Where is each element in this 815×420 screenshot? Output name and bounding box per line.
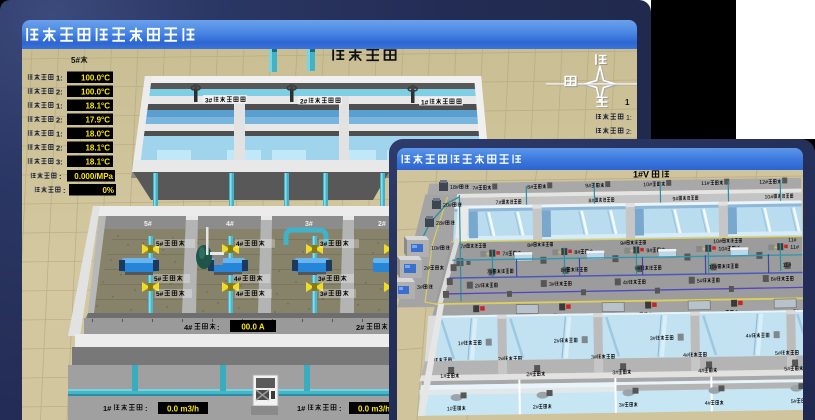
svg-text:4#: 4#: [236, 291, 244, 298]
svg-text:3#: 3#: [205, 98, 213, 105]
svg-text:8#: 8#: [574, 250, 580, 256]
svg-text:3#: 3#: [320, 291, 328, 298]
svg-text:1:: 1:: [626, 115, 632, 122]
svg-text:18.1°C: 18.1°C: [85, 102, 110, 111]
svg-text:10#: 10#: [709, 264, 718, 270]
svg-text:9#: 9#: [646, 248, 652, 254]
svg-text:2:: 2:: [56, 144, 63, 153]
svg-text:9#: 9#: [585, 183, 591, 189]
svg-text:8#: 8#: [527, 243, 533, 249]
svg-text:2#: 2#: [300, 99, 308, 106]
svg-text:2#: 2#: [424, 266, 430, 272]
svg-text:10#: 10#: [718, 247, 727, 253]
svg-text:6#: 6#: [771, 277, 777, 283]
svg-text:11#: 11#: [783, 263, 792, 269]
svg-text::: :: [339, 404, 342, 413]
svg-text:5#: 5#: [697, 279, 703, 285]
svg-text:1:: 1:: [56, 130, 63, 139]
svg-text:00.0 A: 00.0 A: [241, 323, 264, 332]
svg-text:5#: 5#: [784, 367, 790, 373]
svg-text:2#: 2#: [526, 372, 532, 378]
svg-text:7#: 7#: [487, 269, 493, 275]
svg-text:2:: 2:: [56, 116, 63, 125]
svg-text:9#: 9#: [635, 266, 641, 272]
svg-text:5#: 5#: [154, 276, 162, 283]
svg-text:3#: 3#: [612, 370, 618, 376]
svg-text:3#: 3#: [305, 221, 313, 228]
svg-text:8#: 8#: [527, 185, 533, 191]
svg-text:18.0°C: 18.0°C: [85, 130, 110, 139]
svg-text:20#: 20#: [443, 203, 452, 209]
svg-text:18#: 18#: [450, 185, 459, 191]
svg-text:5#: 5#: [791, 399, 797, 405]
svg-text:100.0°C: 100.0°C: [81, 88, 110, 97]
svg-text:1#: 1#: [447, 406, 453, 412]
svg-text:4#: 4#: [746, 334, 752, 340]
svg-text::: :: [59, 172, 62, 181]
svg-text:2#: 2#: [475, 283, 481, 289]
svg-text:1:: 1:: [56, 74, 63, 83]
svg-text:2#: 2#: [356, 323, 365, 332]
svg-text:7#: 7#: [460, 244, 466, 250]
svg-text:11#: 11#: [790, 245, 799, 251]
svg-text:2:: 2:: [56, 88, 63, 97]
svg-text:4#: 4#: [698, 368, 704, 374]
svg-text:3#: 3#: [619, 403, 625, 409]
svg-text:2:: 2:: [626, 129, 632, 136]
svg-text:0%: 0%: [102, 186, 114, 195]
svg-text:1:: 1:: [56, 102, 63, 111]
svg-text:0.000/MPa: 0.000/MPa: [74, 172, 113, 181]
svg-text:1: 1: [625, 98, 630, 107]
svg-text:7#: 7#: [472, 186, 478, 192]
svg-text:3:: 3:: [56, 158, 63, 167]
svg-text::: :: [217, 323, 220, 332]
svg-text:10#: 10#: [713, 239, 722, 245]
svg-text::: :: [145, 404, 148, 413]
svg-text:4#: 4#: [226, 221, 234, 228]
svg-text:4#: 4#: [234, 276, 242, 283]
svg-text::: :: [63, 186, 66, 195]
svg-text:4#: 4#: [623, 280, 629, 286]
svg-text:9#: 9#: [672, 196, 678, 202]
svg-text:5#: 5#: [156, 241, 164, 248]
svg-text:5#: 5#: [71, 56, 80, 65]
svg-text:4#: 4#: [705, 401, 711, 407]
svg-text:1#: 1#: [297, 404, 306, 413]
svg-text:3#: 3#: [417, 285, 423, 291]
svg-text:0.0 m3/h: 0.0 m3/h: [167, 405, 199, 414]
svg-text:11#: 11#: [701, 181, 710, 187]
svg-text:12#: 12#: [759, 180, 768, 186]
svg-text:28#: 28#: [436, 221, 445, 227]
svg-text:2#: 2#: [533, 405, 539, 411]
svg-text:10#: 10#: [764, 194, 773, 200]
svg-text:3#: 3#: [650, 336, 656, 342]
svg-text:11#: 11#: [788, 237, 797, 243]
svg-text:3#: 3#: [318, 276, 326, 283]
svg-text:5#: 5#: [144, 221, 152, 228]
svg-text:100.0°C: 100.0°C: [81, 74, 110, 83]
svg-text:1#: 1#: [421, 100, 429, 107]
svg-text:18.1°C: 18.1°C: [85, 144, 110, 153]
svg-text:3#: 3#: [549, 282, 555, 288]
svg-text:1#V: 1#V: [633, 170, 649, 180]
svg-text:9#: 9#: [620, 241, 626, 247]
svg-text:8#: 8#: [588, 198, 594, 204]
svg-text:2#: 2#: [378, 221, 386, 228]
svg-text:4#: 4#: [236, 241, 244, 248]
svg-text:4#: 4#: [184, 323, 193, 332]
svg-text:1#: 1#: [103, 404, 112, 413]
svg-text:17.9°C: 17.9°C: [85, 116, 110, 125]
svg-text:0.0 m3/h: 0.0 m3/h: [358, 405, 390, 414]
svg-text:7#: 7#: [502, 251, 508, 257]
svg-text:10#: 10#: [431, 246, 440, 252]
svg-text:1#: 1#: [458, 341, 464, 347]
svg-text:5#: 5#: [156, 291, 164, 298]
svg-text:18.1°C: 18.1°C: [85, 158, 110, 167]
svg-text:10#: 10#: [643, 182, 652, 188]
svg-text:3#: 3#: [320, 241, 328, 248]
svg-text:8#: 8#: [561, 268, 567, 274]
svg-text:2#: 2#: [554, 339, 560, 345]
svg-text:1#: 1#: [440, 374, 446, 380]
